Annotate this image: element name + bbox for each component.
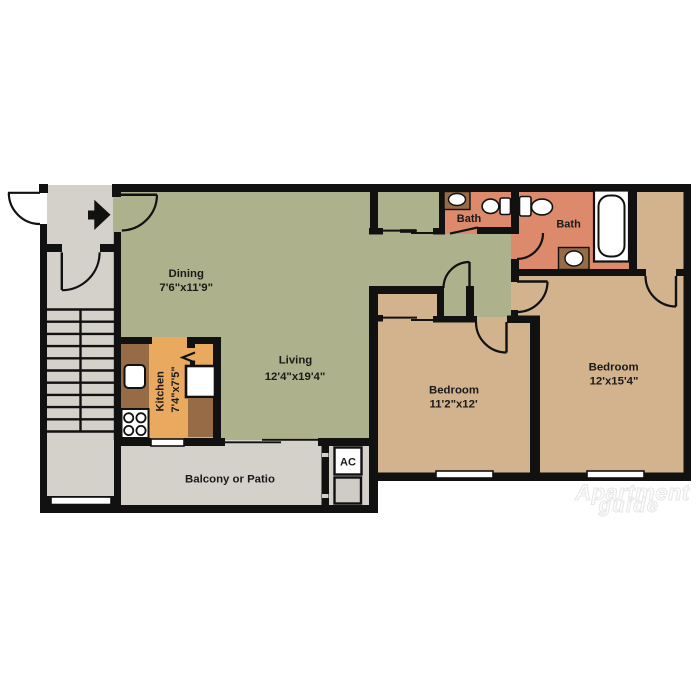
svg-text:Living: Living [279,355,313,367]
svg-text:Kitchen: Kitchen [155,371,167,412]
svg-text:Bath: Bath [457,213,482,225]
svg-text:12'x15'4": 12'x15'4" [590,376,639,388]
svg-text:Dining: Dining [168,268,203,280]
svg-text:7'6"x11'9": 7'6"x11'9" [159,282,213,294]
svg-text:11'2"x12': 11'2"x12' [429,399,477,411]
svg-text:AC: AC [340,457,356,469]
svg-text:guide: guide [598,495,660,517]
svg-text:Bedroom: Bedroom [589,362,639,374]
svg-text:Bedroom: Bedroom [429,385,479,397]
svg-text:Balcony or Patio: Balcony or Patio [185,474,275,486]
svg-text:Bath: Bath [556,219,581,231]
svg-text:7'4"x7'5": 7'4"x7'5" [170,366,182,412]
svg-text:12'4"x19'4": 12'4"x19'4" [265,371,326,383]
